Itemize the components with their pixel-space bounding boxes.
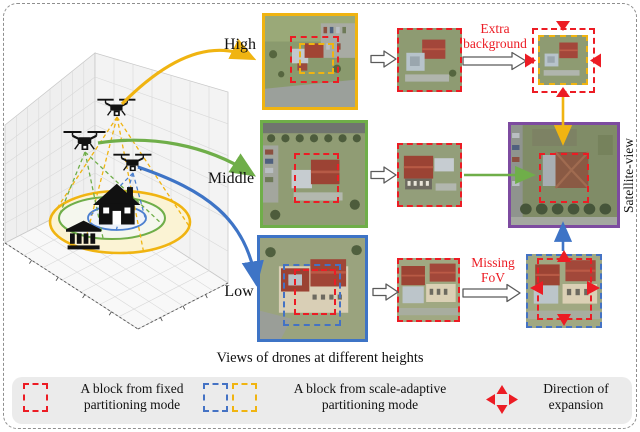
satellite-fixed-block-box — [539, 153, 589, 203]
low-label: Low — [218, 283, 260, 300]
low-view-image — [257, 235, 368, 342]
expansion-arrows-icon — [485, 384, 519, 415]
middle-fixed-block-box — [294, 153, 339, 203]
low-block-crop — [397, 258, 460, 322]
low-fixed-result-box — [537, 258, 592, 320]
middle-block-crop — [397, 143, 462, 207]
legend-adaptive-yellow-swatch — [232, 383, 257, 412]
high-expansion-box — [532, 28, 595, 93]
legend-fixed-block-swatch — [23, 383, 48, 412]
legend-adaptive-block-label: A block from scale-adaptive partitioning… — [264, 381, 476, 413]
extra-background-label: Extra background — [455, 22, 535, 51]
legend-expansion-label: Direction of expansion — [524, 381, 628, 413]
middle-view-image — [260, 120, 368, 228]
high-label: High — [218, 36, 262, 53]
high-block-crop — [397, 28, 462, 92]
low-fixed-block-box — [294, 269, 336, 315]
high-adaptive-result-image — [538, 35, 588, 85]
satellite-view-image — [508, 122, 620, 228]
legend-fixed-block-label: A block from fixed partitioning mode — [57, 381, 207, 413]
missing-fov-label: Missing FoV — [461, 256, 525, 285]
legend: A block from fixed partitioning mode A b… — [12, 377, 632, 424]
legend-adaptive-blue-swatch — [203, 383, 228, 412]
figure-caption: Views of drones at different heights — [160, 351, 480, 367]
high-adaptive-block-box — [299, 43, 334, 74]
middle-label: Middle — [203, 170, 259, 187]
figure-drone-satellite-matching: High Middle Low Extra background Missing… — [0, 0, 640, 432]
high-view-image — [262, 13, 358, 110]
low-adaptive-result-image — [526, 254, 602, 328]
satellite-view-label: Satellite-view — [621, 122, 637, 229]
